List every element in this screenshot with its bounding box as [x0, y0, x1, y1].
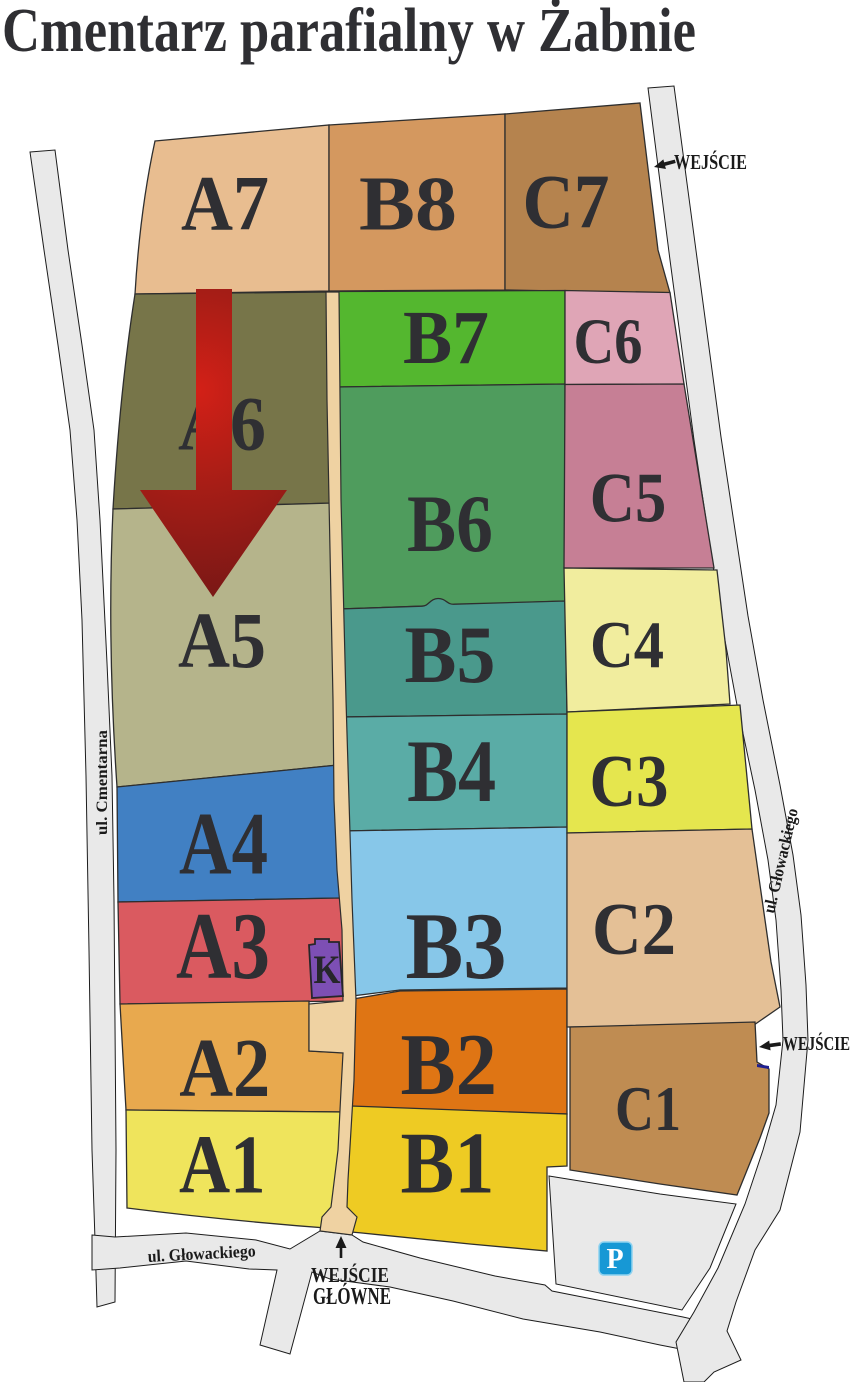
svg-text:A7: A7: [181, 160, 269, 247]
svg-text:B1: B1: [401, 1116, 495, 1213]
svg-text:K: K: [314, 947, 341, 992]
svg-text:B4: B4: [407, 723, 496, 821]
svg-text:A5: A5: [178, 598, 266, 685]
svg-text:ul. Cmentarna: ul. Cmentarna: [94, 730, 111, 835]
svg-text:WEJŚCIE: WEJŚCIE: [674, 150, 747, 174]
svg-text:Cmentarz parafialny w Żabnie: Cmentarz parafialny w Żabnie: [2, 0, 696, 65]
svg-text:P: P: [606, 1244, 623, 1275]
svg-text:A1: A1: [179, 1119, 266, 1212]
svg-text:C2: C2: [592, 889, 676, 971]
svg-text:C6: C6: [574, 306, 643, 378]
svg-text:C1: C1: [615, 1073, 681, 1144]
svg-text:B6: B6: [407, 478, 493, 569]
svg-text:C3: C3: [590, 741, 669, 823]
svg-text:C5: C5: [590, 459, 667, 537]
svg-text:A4: A4: [179, 796, 268, 894]
svg-text:B7: B7: [403, 296, 489, 380]
svg-text:GŁÓWNE: GŁÓWNE: [313, 1283, 391, 1310]
svg-text:WEJŚCIE: WEJŚCIE: [783, 1031, 850, 1055]
svg-text:B2: B2: [400, 1017, 497, 1114]
svg-text:B5: B5: [405, 609, 496, 700]
svg-text:C7: C7: [523, 159, 610, 245]
svg-text:A2: A2: [179, 1022, 270, 1115]
svg-text:C4: C4: [590, 608, 664, 682]
svg-text:B8: B8: [359, 161, 457, 247]
svg-text:A3: A3: [176, 893, 270, 999]
svg-text:B3: B3: [406, 893, 507, 999]
